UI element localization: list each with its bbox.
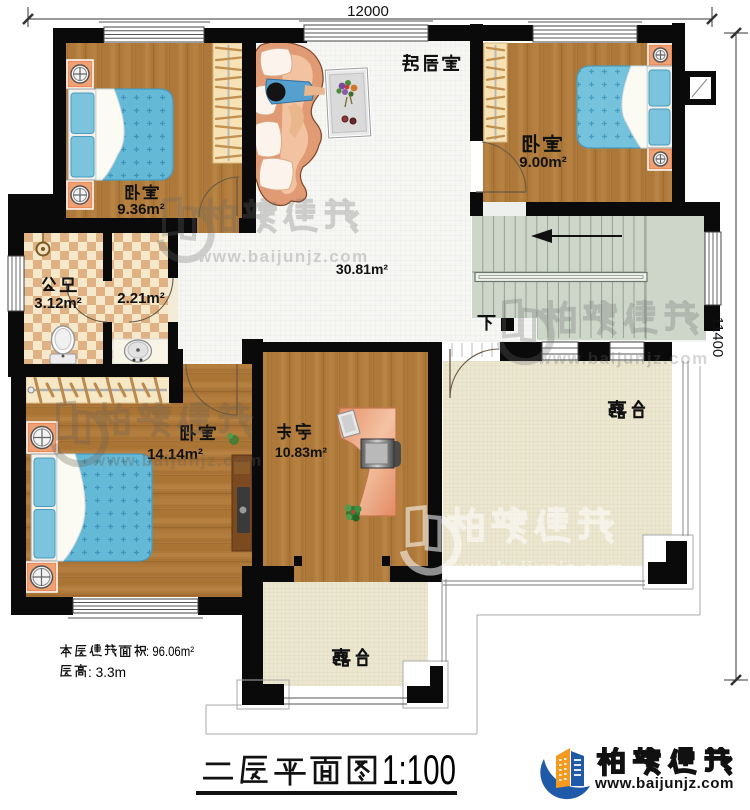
svg-text:9.36m²: 9.36m² <box>117 201 165 218</box>
svg-text:www.baijunjz.com: www.baijunjz.com <box>537 349 709 368</box>
svg-text:10.83m²: 10.83m² <box>275 444 327 460</box>
svg-text:11400: 11400 <box>709 317 726 358</box>
svg-text:: 3.3m: : 3.3m <box>88 664 126 680</box>
svg-text:1:100: 1:100 <box>382 746 456 793</box>
svg-text:3.12m²: 3.12m² <box>34 295 82 312</box>
svg-text:9.00m²: 9.00m² <box>519 154 567 171</box>
svg-text:: 96.06m²: : 96.06m² <box>146 643 194 659</box>
svg-text:www.baijunjz.com: www.baijunjz.com <box>197 247 369 266</box>
svg-text:www.baijunjz.com: www.baijunjz.com <box>91 451 263 470</box>
svg-text:www.baijunjz.com: www.baijunjz.com <box>594 776 734 792</box>
svg-text:2.21m²: 2.21m² <box>117 290 165 307</box>
svg-text:www.baijunjz.com: www.baijunjz.com <box>443 558 625 578</box>
svg-text:12000: 12000 <box>347 3 389 20</box>
